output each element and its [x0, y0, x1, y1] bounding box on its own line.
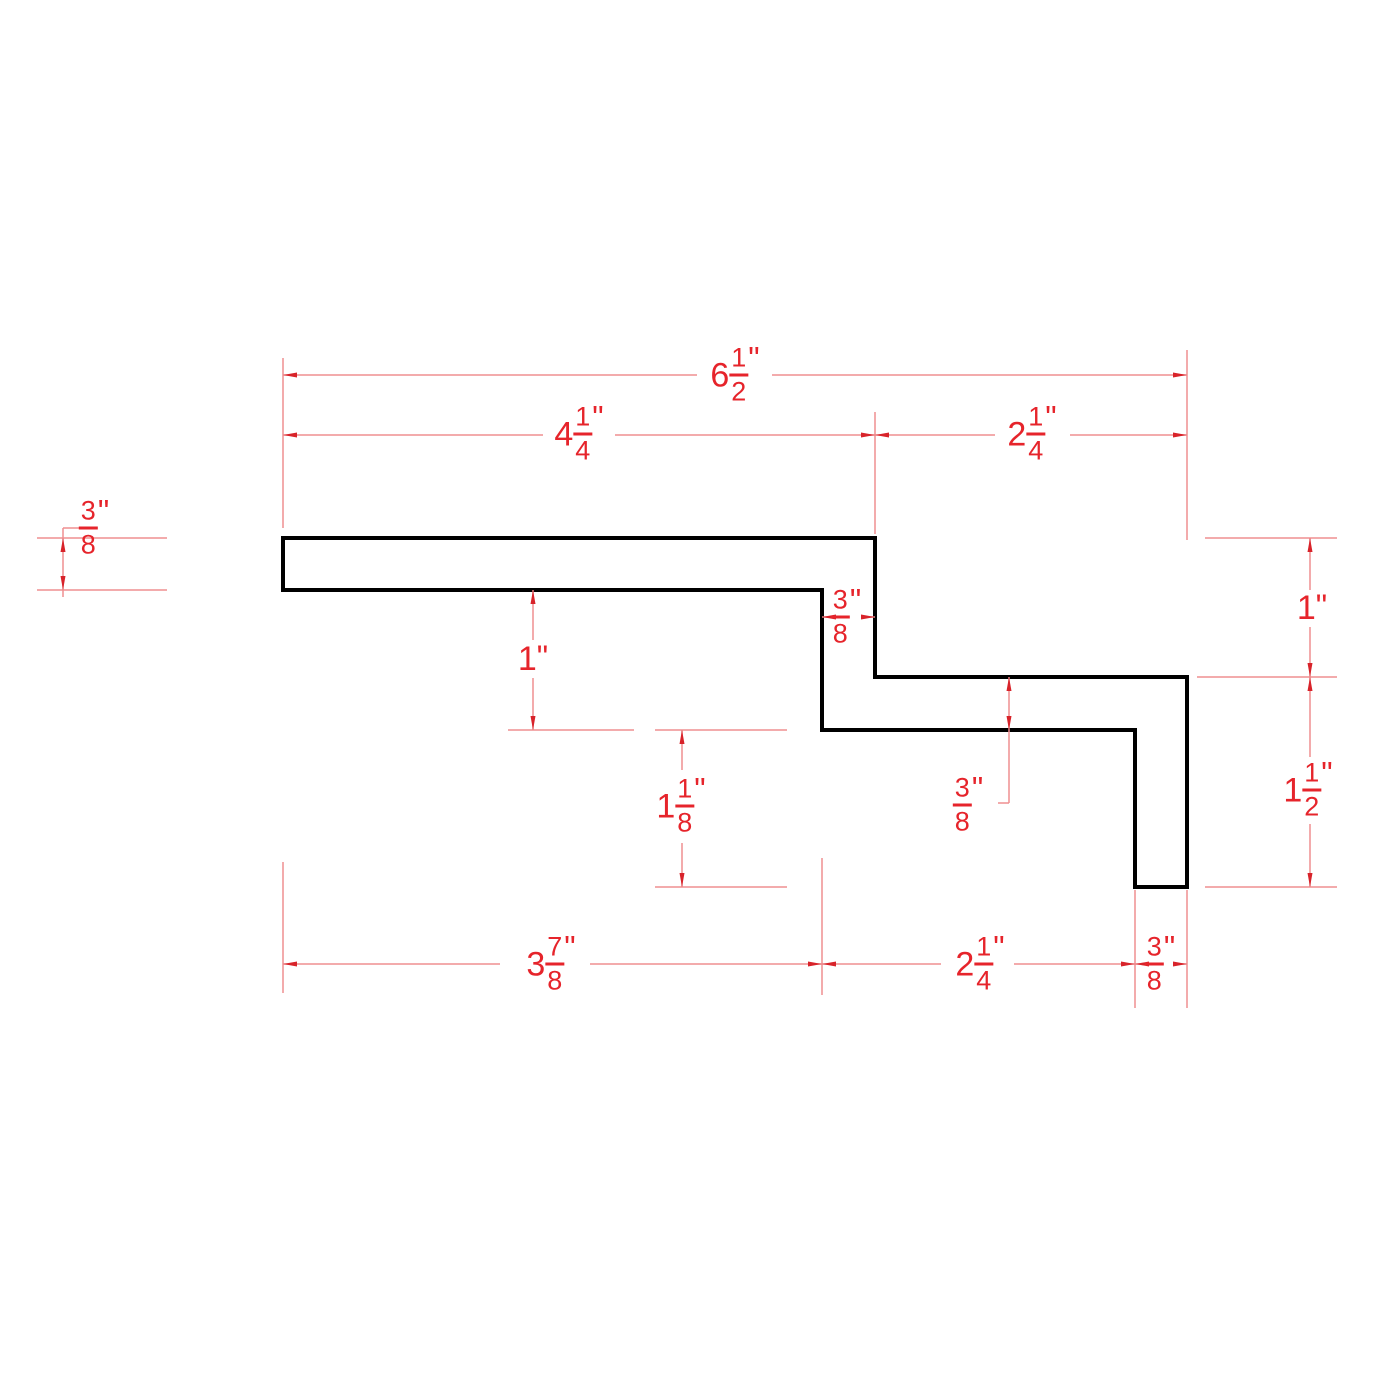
dim-top-left-span: 4 14 ": [554, 404, 603, 465]
dim-inner-drop-height: 1 18 ": [656, 776, 705, 837]
drawing-svg: [0, 0, 1400, 1400]
dim-right-lower-height: 1 12 ": [1283, 760, 1332, 821]
dim-top-right-span: 2 14 ": [1007, 404, 1056, 465]
dim-bottom-mid-span: 2 14 ": [955, 934, 1004, 995]
profile-outline: [283, 538, 1187, 887]
dim-top-flange-thickness: 38 ": [79, 498, 109, 559]
dimension-lines: [63, 375, 1310, 964]
dim-right-web-thickness: 38 ": [953, 775, 983, 836]
dim-bottom-left-span: 3 78 ": [526, 934, 575, 995]
arrowheads: [61, 373, 1313, 967]
dim-overall-width: 6 12 ": [710, 345, 759, 406]
dim-bottom-right-thickness: 38 ": [1145, 934, 1175, 995]
technical-drawing-canvas: 6 12 " 4 14 " 2 14 " 38 " 38 " 1 " 1 18 …: [0, 0, 1400, 1400]
dim-step-web-thickness: 38 ": [831, 587, 861, 648]
dim-inner-step-height: 1 ": [518, 642, 548, 676]
dim-right-upper-height: 1 ": [1297, 591, 1327, 625]
